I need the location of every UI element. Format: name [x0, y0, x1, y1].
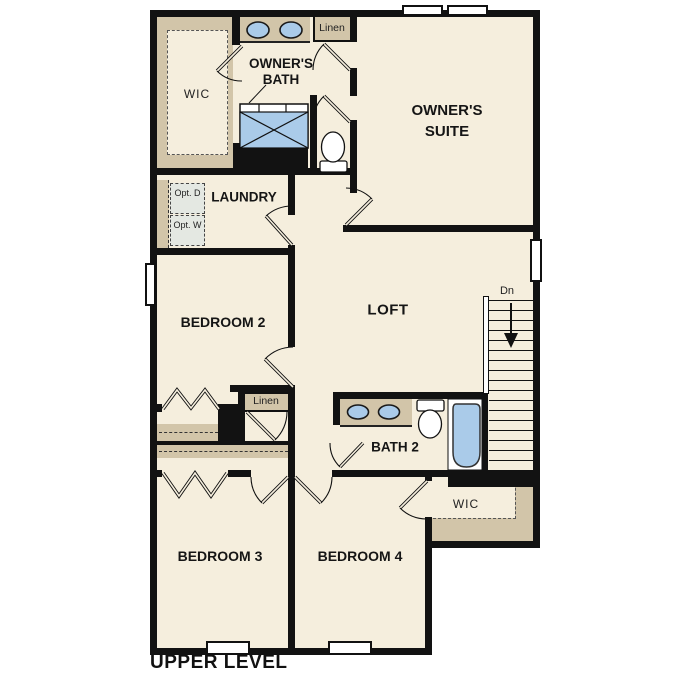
owners-suite-label: OWNER'S SUITE [411, 100, 482, 142]
wall-hall-b [288, 245, 295, 347]
linen-mid-label: Linen [253, 395, 279, 407]
bedroom3-closet-rod [159, 451, 288, 452]
wall-wic-bath-div [232, 17, 240, 45]
wall-bed2-bottom-r [218, 404, 238, 412]
bath2-label: BATH 2 [371, 440, 419, 455]
laundry-side-shelf [157, 180, 169, 248]
opt-dryer-label-1: Opt. [174, 188, 191, 198]
linen-upper-label: Linen [319, 22, 345, 34]
stair-down-arrow-shaft [510, 303, 512, 335]
wic-lower-label: WIC [453, 497, 479, 511]
stair-railing [483, 296, 489, 394]
bedroom2-label: BEDROOM 2 [181, 314, 266, 330]
opt-dryer-label-2: D [194, 188, 201, 198]
wall-closet-divider [157, 441, 290, 445]
wall-suite-left-a [350, 10, 357, 42]
wall-closet-block [218, 412, 245, 444]
bedroom3-label: BEDROOM 3 [178, 548, 263, 564]
wall-bath2-top [333, 392, 488, 399]
wall-linen-mid-top [230, 385, 295, 392]
wall-bedroom4-right-stub [425, 477, 432, 481]
bath2-vanity [340, 399, 412, 427]
wic-lower-shelf-bottom [432, 518, 533, 541]
wall-linen-mid-left [238, 392, 245, 412]
floor-plan: Opt. D Opt. W [0, 0, 687, 687]
wall-bed3-top-b [228, 470, 251, 477]
bedroom2-closet-rod [159, 432, 218, 433]
window [530, 239, 542, 282]
wall-hall-a [288, 175, 295, 215]
bedroom4-label: BEDROOM 4 [318, 548, 403, 564]
wall-laundry-bottom [150, 248, 295, 255]
wic-upper-label: WIC [184, 87, 210, 101]
opt-washer-label-1: Opt. [173, 220, 190, 230]
opt-washer-label-2: W [193, 220, 202, 230]
wall-suite-left-b [350, 68, 357, 96]
wall-bed2-bottom-l [150, 404, 162, 412]
laundry-label: LAUNDRY [211, 190, 277, 205]
optional-washer: Opt. W [170, 215, 205, 246]
stair-down-arrow-head [504, 333, 518, 348]
wall-jut-bottom [425, 541, 540, 548]
wall-bed4-top [332, 470, 448, 477]
wall-suite-left-c [350, 120, 357, 193]
window [402, 5, 443, 16]
stairs-dn-label: Dn [500, 285, 514, 297]
window [145, 263, 156, 306]
wall-bed3-top-a [150, 470, 162, 477]
wall-bath2-left [333, 392, 340, 425]
wic-lower-shelf-right [515, 487, 533, 518]
wall-tub-right [482, 392, 488, 470]
wall-shower-chase [233, 143, 308, 175]
wall-hall-c [288, 390, 295, 472]
optional-dryer: Opt. D [170, 183, 205, 214]
wall-under-stairs [448, 470, 533, 487]
wall-left [150, 10, 157, 655]
loft-label: LOFT [367, 302, 408, 319]
owners-bath-vanity [237, 17, 310, 43]
window [328, 641, 372, 655]
owners-bath-label: OWNER'S BATH [249, 56, 313, 88]
plan-title: UPPER LEVEL [150, 652, 287, 674]
wall-bed3-bed4-divider [288, 477, 295, 648]
window [447, 5, 488, 16]
wall-bedroom4-right [425, 517, 432, 655]
wall-suite-bottom [343, 225, 540, 232]
wall-toilet-nook [310, 95, 317, 175]
wall-bed34-cap [288, 470, 295, 477]
